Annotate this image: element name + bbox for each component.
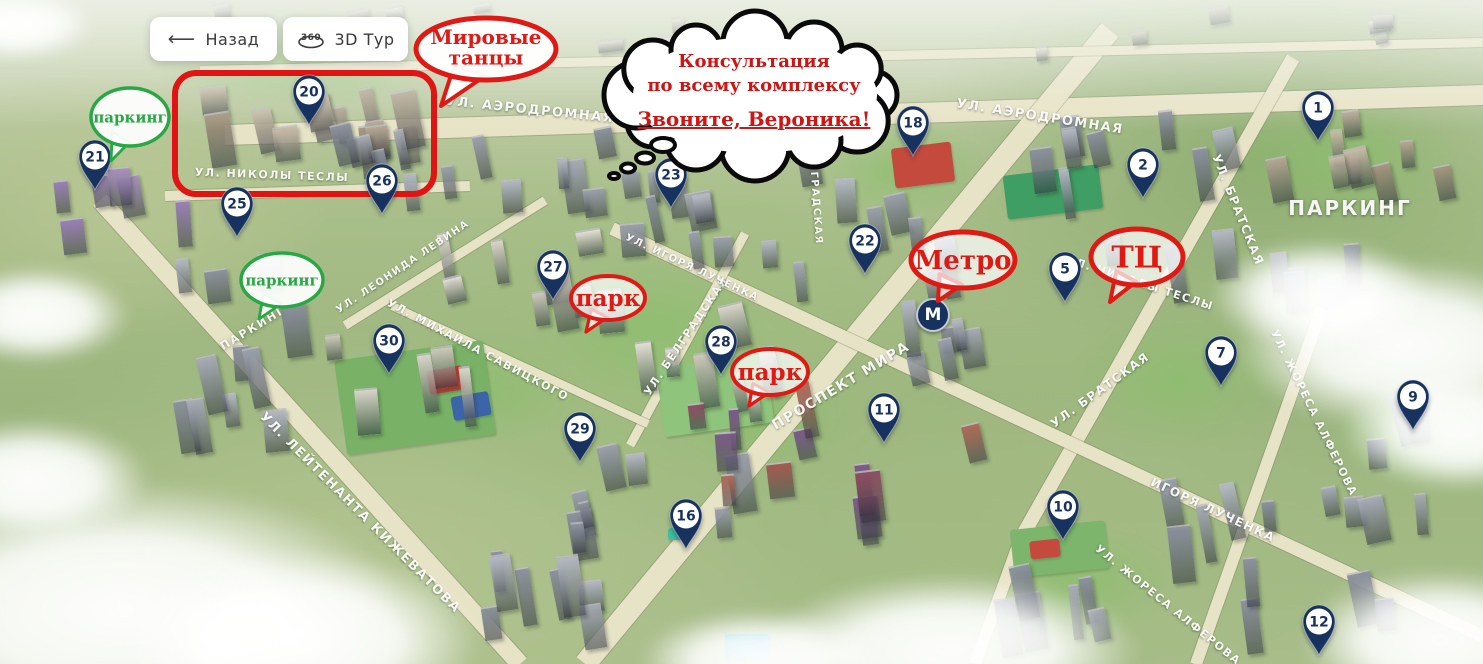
svg-text:2: 2 [1138, 157, 1148, 173]
building [575, 227, 604, 257]
svg-text:паркинг: паркинг [93, 108, 166, 126]
building [1400, 139, 1416, 168]
svg-text:16: 16 [676, 508, 695, 524]
svg-text:12: 12 [1309, 614, 1328, 630]
svg-text:22: 22 [855, 233, 874, 249]
svg-text:9: 9 [1408, 389, 1418, 405]
svg-text:парк: парк [576, 285, 641, 312]
map-marker-29[interactable]: 29 [560, 409, 600, 465]
svg-text:7: 7 [1216, 345, 1226, 361]
building [765, 461, 794, 500]
map-marker-2[interactable]: 2 [1123, 145, 1163, 201]
building [501, 179, 524, 215]
building [325, 333, 343, 361]
building [60, 216, 88, 255]
svg-text:26: 26 [372, 173, 391, 189]
svg-text:20: 20 [299, 84, 319, 100]
back-button-label: Назад [206, 30, 260, 49]
svg-text:ТЦ: ТЦ [1111, 241, 1162, 276]
back-button[interactable]: ⟵ Назад [150, 17, 277, 61]
map-marker-9[interactable]: 9 [1393, 377, 1433, 433]
svg-text:29: 29 [570, 421, 589, 437]
park-bubble-2: парк [722, 339, 818, 416]
svg-text:30: 30 [379, 333, 399, 349]
svg-text:5: 5 [1060, 261, 1070, 277]
map-marker-20[interactable]: 20 [289, 72, 329, 128]
map-marker-30[interactable]: 30 [369, 321, 409, 377]
metro-bubble: Метро [901, 222, 1025, 311]
building [687, 402, 706, 430]
3d-tour-button-label: 3D Тур [335, 30, 395, 49]
svg-text:1: 1 [1313, 100, 1323, 116]
building [761, 240, 779, 269]
360-rotation-icon: 360 [297, 29, 325, 49]
consultation-line1: Консультация [636, 50, 872, 74]
svg-text:паркинг: паркинг [245, 271, 318, 289]
building [557, 157, 569, 190]
cloud [1210, 240, 1430, 350]
map-marker-7[interactable]: 7 [1201, 333, 1241, 389]
3d-tour-button[interactable]: 360 3D Тур [283, 17, 408, 61]
map-marker-26[interactable]: 26 [362, 161, 402, 217]
svg-text:27: 27 [543, 259, 562, 275]
map-marker-11[interactable]: 11 [864, 390, 904, 446]
building [713, 235, 734, 267]
svg-text:11: 11 [874, 402, 893, 418]
map-stage: УЛ. АЭРОДРОМНАЯУЛ. АЭРОДРОМНАЯУЛ. НИКОЛЫ… [0, 0, 1483, 664]
map-marker-12[interactable]: 12 [1299, 602, 1339, 658]
map-marker-25[interactable]: 25 [217, 184, 257, 240]
mall-bubble: ТЦ [1081, 219, 1193, 312]
map-marker-1[interactable]: 1 [1298, 88, 1338, 144]
parking-map-label: ПАРКИНГ [1288, 196, 1411, 220]
map-marker-10[interactable]: 10 [1043, 487, 1083, 543]
building [354, 387, 381, 436]
map-marker-5[interactable]: 5 [1045, 249, 1085, 305]
dance-bubble: Мировыетанцы [406, 8, 566, 116]
consultation-call-line: Звоните, Вероника! [638, 107, 871, 131]
svg-text:25: 25 [227, 196, 246, 212]
parking-bubble-1: паркинг [81, 78, 179, 171]
map-marker-22[interactable]: 22 [845, 221, 885, 277]
consultation-line2: по всему комплексу [636, 74, 872, 98]
svg-text:10: 10 [1053, 499, 1073, 515]
svg-text:парк: парк [738, 359, 803, 386]
svg-text:360: 360 [300, 33, 320, 43]
left-arrow-icon: ⟵ [168, 30, 196, 49]
svg-text:Метро: Метро [915, 246, 1012, 276]
map-marker-16[interactable]: 16 [666, 496, 706, 552]
building [714, 432, 738, 472]
consultation-note: Консультация по всему комплексу Звоните,… [636, 50, 872, 131]
parking-bubble-2: паркинг [231, 243, 333, 329]
park-bubble-1: парк [561, 266, 655, 342]
